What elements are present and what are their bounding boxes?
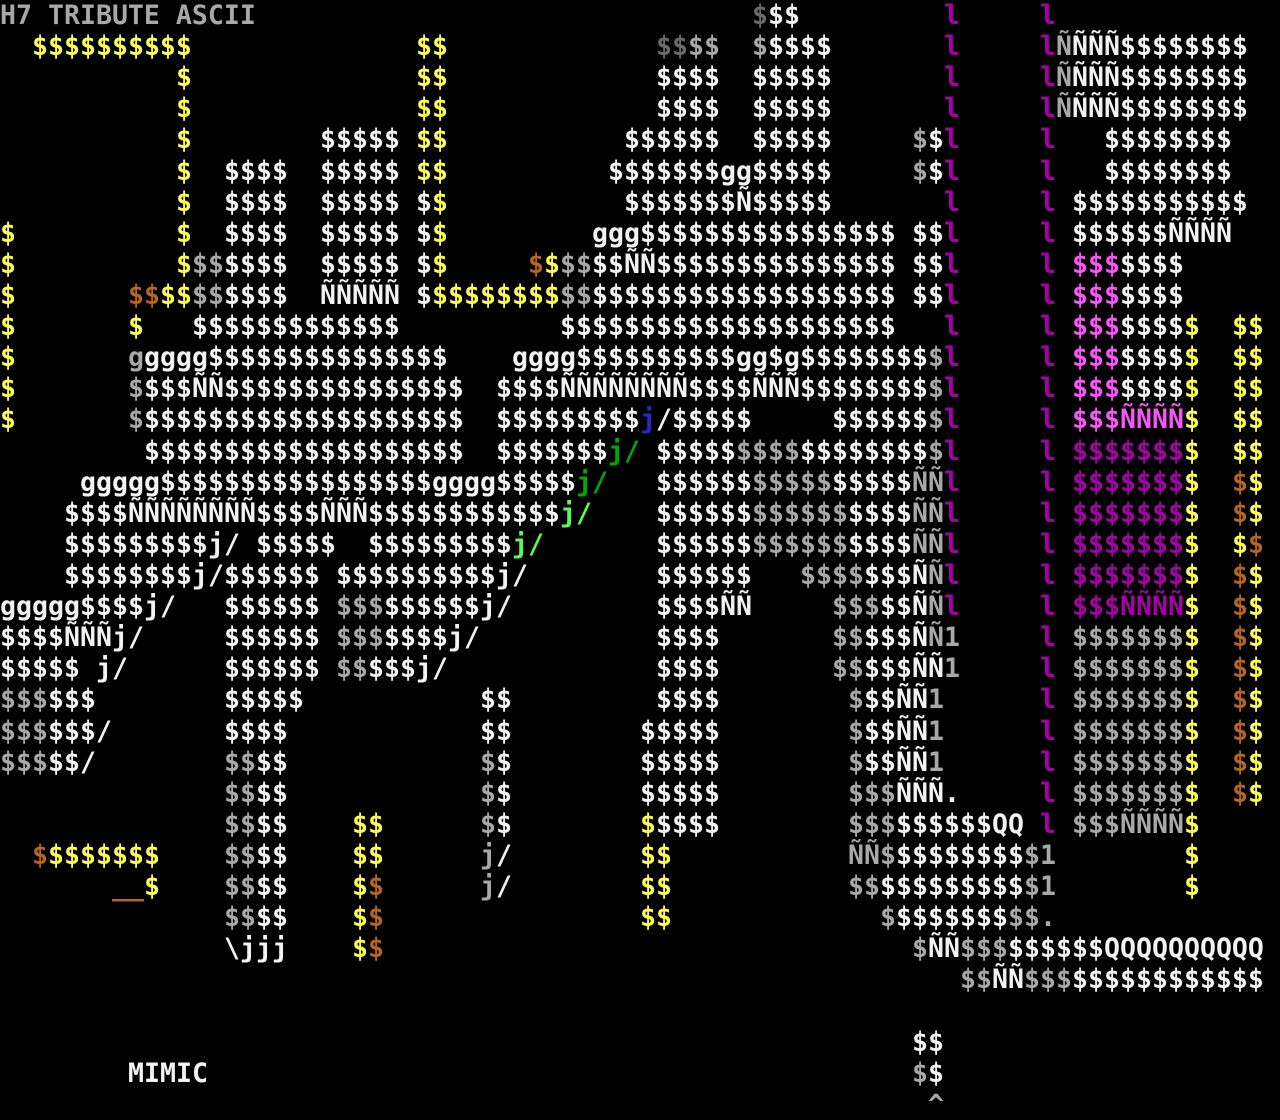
- art-char-run: j: [608, 436, 624, 467]
- art-char-run: g: [784, 342, 800, 373]
- art-char-run: l: [944, 436, 960, 467]
- art-char-run: $$$$$: [752, 156, 832, 187]
- art-char-run: __: [112, 871, 144, 902]
- art-char-run: $$$$$: [496, 467, 576, 498]
- art-char-run: $$$$$$$$$$$$: [1072, 964, 1264, 995]
- art-char-run: $: [1248, 498, 1264, 529]
- art-char-run: /: [512, 560, 528, 591]
- art-char-run: $$: [224, 902, 256, 933]
- art-char-run: $$$$$: [224, 684, 304, 715]
- art-char-run: $: [1248, 560, 1264, 591]
- art-char-run: 1: [944, 622, 960, 653]
- art-char-run: $$$: [864, 560, 912, 591]
- art-char-run: $$$$$$$$$$$$: [368, 498, 560, 529]
- art-char-run: l: [1040, 778, 1056, 809]
- art-char-run: /: [432, 653, 448, 684]
- art-char-run: $: [0, 404, 16, 435]
- art-char-run: $: [480, 778, 496, 809]
- art-char-run: l: [1040, 560, 1056, 591]
- art-char-run: l: [944, 187, 960, 218]
- art-char-run: l: [1040, 716, 1056, 747]
- art-char-run: $$$$$$$: [1072, 560, 1184, 591]
- art-char-run: $$$$$$$$$$$$$$$$$$$$: [144, 404, 464, 435]
- art-char-run: $: [1232, 747, 1248, 778]
- art-char-run: $$: [592, 249, 624, 280]
- art-char-run: /: [208, 560, 224, 591]
- art-char-run: $$$: [1072, 342, 1120, 373]
- art-char-run: $: [176, 124, 192, 155]
- art-char-run: $$$$$: [672, 404, 752, 435]
- art-char-run: $$: [1232, 373, 1264, 404]
- art-char-run: ÑÑÑÑ: [1120, 591, 1184, 622]
- art-char-run: $$: [224, 747, 256, 778]
- art-char-run: $: [0, 249, 16, 280]
- art-char-run: $$$$: [1120, 311, 1184, 342]
- art-char-run: $$$$$$$: [496, 436, 608, 467]
- art-char-run: /: [592, 467, 608, 498]
- art-char-run: ÑÑ: [912, 653, 944, 684]
- art-char-run: $: [480, 747, 496, 778]
- art-char-run: $$$: [864, 653, 912, 684]
- art-char-run: $$$$$$$: [48, 840, 160, 871]
- art-char-run: j: [144, 591, 160, 622]
- art-char-run: $: [1184, 560, 1200, 591]
- art-char-run: $: [128, 311, 144, 342]
- art-char-run: l: [1040, 280, 1056, 311]
- art-char-run: $: [1248, 529, 1264, 560]
- art-char-run: $$: [560, 249, 592, 280]
- art-char-run: $$$$$: [656, 436, 736, 467]
- art-char-run: $$$$$$$$$$$$$$$: [208, 342, 448, 373]
- art-char-run: $$$: [864, 622, 912, 653]
- art-char-run: $$$$: [656, 653, 720, 684]
- art-char-run: $$$$$$: [1008, 933, 1104, 964]
- art-char-run: $$$$$$$: [1072, 498, 1184, 529]
- art-char-run: $: [1184, 622, 1200, 653]
- art-char-run: $$$$$$: [752, 498, 848, 529]
- art-char-run: $$$$$: [640, 778, 720, 809]
- art-char-run: $: [1248, 747, 1264, 778]
- art-char-run: $$: [352, 809, 384, 840]
- art-char-run: $$$$$: [320, 249, 400, 280]
- art-char-run: $$: [224, 809, 256, 840]
- art-char-run: $: [432, 187, 448, 218]
- art-char-run: $: [528, 249, 544, 280]
- art-char-run: $$$: [848, 809, 896, 840]
- art-char-run: l: [944, 404, 960, 435]
- art-char-run: /: [496, 871, 512, 902]
- art-char-run: $$: [864, 716, 896, 747]
- art-char-run: l: [1040, 404, 1056, 435]
- art-char-run: $: [1184, 809, 1200, 840]
- art-char-run: $: [1184, 436, 1200, 467]
- art-char-run: $$$: [848, 778, 896, 809]
- art-char-run: $$$$$$: [656, 529, 752, 560]
- art-char-run: $: [1232, 684, 1248, 715]
- art-char-run: Ñ: [928, 622, 944, 653]
- art-char-run: $: [352, 871, 368, 902]
- art-char-run: $$$$$$$$$$$$$$$$$$$$$: [560, 311, 896, 342]
- art-char-run: $$$$$$$$: [432, 280, 560, 311]
- art-char-run: l: [1040, 498, 1056, 529]
- art-char-run: j: [112, 622, 128, 653]
- art-char-run: $$: [48, 747, 80, 778]
- art-char-run: ÑÑÑ: [896, 778, 944, 809]
- art-char-run: $: [1184, 653, 1200, 684]
- art-char-run: j: [208, 529, 224, 560]
- art-char-run: $$$$$$$: [1072, 653, 1184, 684]
- art-char-run: $$$$: [656, 684, 720, 715]
- art-char-run: $: [880, 840, 896, 871]
- art-char-run: $: [0, 218, 16, 249]
- art-char-run: l: [1040, 342, 1056, 373]
- art-char-run: gggg: [512, 342, 576, 373]
- art-char-run: j: [96, 653, 112, 684]
- art-char-run: $$: [224, 840, 256, 871]
- art-char-run: $$: [960, 964, 992, 995]
- art-char-run: $: [1232, 498, 1248, 529]
- art-char-run: $$: [640, 840, 672, 871]
- art-char-run: $$$$: [768, 31, 832, 62]
- art-char-run: /: [624, 436, 640, 467]
- art-char-run: $$: [256, 871, 288, 902]
- art-char-run: 1: [1040, 840, 1056, 871]
- art-char-run: $$: [192, 280, 224, 311]
- art-char-run: $$$$$$$$$$$$$$$: [656, 249, 896, 280]
- art-char-run: $$$$: [0, 622, 64, 653]
- art-char-run: $: [1248, 591, 1264, 622]
- art-char-run: /: [496, 591, 512, 622]
- art-char-run: $$$$$: [256, 529, 336, 560]
- art-char-run: $$: [480, 716, 512, 747]
- art-char-run: j: [640, 404, 656, 435]
- art-char-run: $: [176, 62, 192, 93]
- art-char-run: $: [176, 249, 192, 280]
- art-char-run: \jjj: [224, 933, 288, 964]
- art-char-run: $: [880, 902, 896, 933]
- ascii-art-screen: H7 TRIBUTE ASCII$$$ll$$$$$$$$$$$$$$$$$$$…: [0, 0, 1280, 1120]
- art-char-run: $$$$$$$: [624, 187, 736, 218]
- art-char-run: ÑÑ: [848, 840, 880, 871]
- art-char-run: $$$: [0, 747, 48, 778]
- art-char-run: $$: [1232, 342, 1264, 373]
- art-char-run: $: [416, 249, 432, 280]
- art-char-run: $: [768, 342, 784, 373]
- art-char-run: $$$$: [656, 93, 720, 124]
- art-char-run: $: [1184, 778, 1200, 809]
- art-char-run: $$$$$: [320, 218, 400, 249]
- art-char-run: $$: [160, 280, 192, 311]
- art-char-run: $: [1184, 840, 1200, 871]
- art-char-run: $: [1184, 311, 1200, 342]
- art-char-run: $: [432, 249, 448, 280]
- art-char-run: j: [480, 591, 496, 622]
- art-char-run: $$: [256, 809, 288, 840]
- art-char-run: $$$$$$$$$$$$$$$$$$$: [592, 280, 896, 311]
- art-char-run: $: [1232, 716, 1248, 747]
- art-char-run: $$: [416, 124, 448, 155]
- art-char-run: l: [944, 62, 960, 93]
- art-char-run: $: [912, 933, 928, 964]
- art-char-run: $$$$$$: [224, 560, 320, 591]
- art-char-run: ÑÑ: [720, 591, 752, 622]
- art-char-run: $: [1248, 653, 1264, 684]
- art-char-run: $$$$$$$$$: [496, 404, 640, 435]
- art-char-run: $$$$$$$$: [800, 342, 928, 373]
- art-char-run: $: [144, 871, 160, 902]
- art-char-run: ÑÑÑÑÑÑÑÑ: [128, 498, 256, 529]
- art-char-run: $$: [224, 871, 256, 902]
- art-char-run: H7 TRIBUTE ASCII: [0, 0, 256, 31]
- art-char-run: $$$: [48, 716, 96, 747]
- art-char-run: $$: [416, 62, 448, 93]
- art-char-run: ÑÑ: [928, 933, 960, 964]
- art-char-run: $$$$$$$: [1072, 622, 1184, 653]
- art-char-run: $: [368, 871, 384, 902]
- art-char-run: $: [1232, 591, 1248, 622]
- art-char-run: $$: [416, 93, 448, 124]
- art-char-run: $$$$: [1120, 342, 1184, 373]
- art-char-run: ÑÑ: [896, 747, 928, 778]
- art-char-run: $$$: [1072, 311, 1120, 342]
- art-char-run: /: [464, 622, 480, 653]
- art-char-run: $$: [256, 747, 288, 778]
- art-char-run: $: [1024, 871, 1040, 902]
- art-char-run: l: [944, 249, 960, 280]
- art-char-run: ÑÑ: [912, 467, 944, 498]
- art-char-run: $$$$$: [752, 124, 832, 155]
- art-char-run: l: [1040, 747, 1056, 778]
- art-char-run: $$$: [368, 653, 416, 684]
- art-char-run: $: [1184, 871, 1200, 902]
- art-char-run: l: [1040, 187, 1056, 218]
- art-char-run: Ñ: [928, 560, 944, 591]
- art-char-run: $: [912, 1058, 928, 1089]
- art-char-run: Ñ: [912, 622, 928, 653]
- art-char-run: $$$$$: [0, 653, 80, 684]
- art-char-run: Ñ: [1056, 93, 1072, 124]
- art-char-run: ÑÑÑ: [752, 373, 800, 404]
- art-char-run: $$: [912, 218, 944, 249]
- art-char-run: $$$$$$$: [1072, 684, 1184, 715]
- art-char-run: $: [848, 716, 864, 747]
- art-char-run: $$$$: [224, 249, 288, 280]
- art-char-run: /: [656, 404, 672, 435]
- art-char-run: 1: [1040, 871, 1056, 902]
- art-char-run: $$$: [48, 684, 96, 715]
- art-char-run: gg: [720, 156, 752, 187]
- art-char-run: Ñ: [912, 591, 928, 622]
- art-char-run: $$$: [0, 684, 48, 715]
- art-char-run: j: [480, 871, 496, 902]
- art-char-run: $$$$$$$$: [800, 436, 928, 467]
- art-char-run: l: [944, 31, 960, 62]
- art-char-run: $$$$$$: [656, 467, 752, 498]
- art-char-run: ÑÑÑ: [1072, 93, 1120, 124]
- art-char-run: $$: [352, 840, 384, 871]
- art-char-run: $$: [832, 622, 864, 653]
- art-char-run: l: [944, 156, 960, 187]
- art-char-run: l: [1040, 467, 1056, 498]
- art-char-run: $$$: [336, 591, 384, 622]
- art-char-run: $: [928, 436, 944, 467]
- art-char-run: l: [1040, 591, 1056, 622]
- art-char-run: Ñ: [1056, 31, 1072, 62]
- art-char-run: $$$$$$$$$$: [32, 31, 192, 62]
- art-char-run: $: [416, 218, 432, 249]
- art-char-run: l: [1040, 31, 1056, 62]
- art-char-run: l: [1040, 373, 1056, 404]
- art-char-run: $: [752, 31, 768, 62]
- art-char-run: l: [944, 498, 960, 529]
- art-char-run: l: [1040, 436, 1056, 467]
- art-char-run: $$$$$$$$: [64, 560, 192, 591]
- art-char-run: 1: [944, 653, 960, 684]
- art-char-run: $$$$: [656, 809, 720, 840]
- art-char-run: $: [416, 280, 432, 311]
- art-char-run: $$$: [960, 933, 1008, 964]
- art-char-run: ggggg: [80, 467, 160, 498]
- art-char-run: $$$$$: [752, 187, 832, 218]
- art-char-run: $$$$$$: [752, 529, 848, 560]
- art-char-run: $$$: [144, 373, 192, 404]
- art-char-run: $: [544, 249, 560, 280]
- art-char-run: $$$$$: [752, 467, 832, 498]
- art-char-run: l: [1040, 62, 1056, 93]
- art-char-run: l: [1040, 311, 1056, 342]
- art-char-run: MIMIC: [128, 1058, 208, 1089]
- art-char-run: $$$$$$$$$$: [336, 560, 496, 591]
- art-char-run: $: [1248, 716, 1264, 747]
- art-char-run: $$$$: [256, 498, 320, 529]
- art-char-run: $$: [912, 1027, 944, 1058]
- art-char-run: l: [1040, 93, 1056, 124]
- art-char-run: ÑÑÑ: [1072, 62, 1120, 93]
- art-char-run: j: [448, 622, 464, 653]
- art-char-run: l: [1040, 124, 1056, 155]
- art-char-run: $: [1184, 591, 1200, 622]
- art-char-run: $$$$$$$: [1072, 747, 1184, 778]
- art-char-run: $$$: [1072, 809, 1120, 840]
- art-char-run: $: [928, 156, 944, 187]
- art-char-run: $$: [848, 871, 880, 902]
- art-char-run: $$$$$$$: [1072, 467, 1184, 498]
- art-char-run: j: [560, 498, 576, 529]
- art-char-run: $: [928, 404, 944, 435]
- art-char-run: $$$$$$$$$$$$$$$$$: [160, 467, 432, 498]
- art-char-run: $: [1184, 684, 1200, 715]
- art-char-run: $: [1184, 467, 1200, 498]
- art-char-run: $: [496, 747, 512, 778]
- art-char-run: l: [944, 218, 960, 249]
- art-char-run: $$$: [336, 622, 384, 653]
- art-char-run: $$$$$: [752, 93, 832, 124]
- art-char-run: $$$: [832, 591, 880, 622]
- art-char-run: $$$$: [224, 716, 288, 747]
- art-char-run: $$: [480, 684, 512, 715]
- art-char-run: $$$$: [736, 436, 800, 467]
- art-char-run: $: [1232, 467, 1248, 498]
- art-char-run: $$$$$: [320, 156, 400, 187]
- art-char-run: Ñ: [928, 591, 944, 622]
- art-char-run: $$$$: [224, 187, 288, 218]
- art-char-run: $: [496, 809, 512, 840]
- art-char-run: $: [176, 93, 192, 124]
- art-char-run: $$$$$$$$$$$: [1072, 187, 1248, 218]
- art-char-run: $$$$: [1120, 249, 1184, 280]
- art-char-run: $: [368, 933, 384, 964]
- art-char-run: Ñ: [1056, 62, 1072, 93]
- art-char-run: l: [1040, 218, 1056, 249]
- art-char-run: $$$$: [384, 622, 448, 653]
- art-char-run: $$$$$: [320, 124, 400, 155]
- art-char-run: $: [912, 156, 928, 187]
- art-char-run: $: [1232, 778, 1248, 809]
- art-char-run: $: [1184, 373, 1200, 404]
- art-char-run: $$$$$: [640, 716, 720, 747]
- art-char-run: gggg: [144, 342, 208, 373]
- art-char-run: $: [1184, 498, 1200, 529]
- art-char-run: $$$$$$: [656, 560, 752, 591]
- art-char-run: $$$$$$$$: [1120, 31, 1248, 62]
- art-char-run: $$: [768, 0, 800, 31]
- art-char-run: ÑÑÑÑ: [1168, 218, 1232, 249]
- art-char-run: $$: [416, 31, 448, 62]
- art-char-run: $$$: [1072, 404, 1120, 435]
- art-char-run: $$$$$$: [224, 653, 320, 684]
- art-char-run: QQQQQQQQQQ: [1104, 933, 1264, 964]
- art-char-run: $$$$$$$$: [1104, 124, 1232, 155]
- art-char-run: gg: [736, 342, 768, 373]
- art-char-run: $$: [256, 840, 288, 871]
- art-char-run: $$$$$$: [224, 622, 320, 653]
- art-char-run: $$$$$$$$$$$$$: [192, 311, 400, 342]
- art-char-run: ggggg: [0, 591, 80, 622]
- art-char-run: l: [1040, 622, 1056, 653]
- art-char-run: ÑÑ: [912, 498, 944, 529]
- art-char-run: $: [928, 124, 944, 155]
- art-char-run: $$$$$$$$: [896, 840, 1024, 871]
- art-char-run: $$: [640, 871, 672, 902]
- art-char-run: $: [1232, 622, 1248, 653]
- art-char-run: $$$$$$$: [1072, 778, 1184, 809]
- art-char-run: .: [1040, 902, 1056, 933]
- art-char-run: $$: [864, 747, 896, 778]
- art-char-run: $: [1184, 747, 1200, 778]
- art-char-run: $$$$: [656, 591, 720, 622]
- art-char-run: ÑÑ: [896, 716, 928, 747]
- art-char-run: l: [944, 591, 960, 622]
- art-char-run: $$$$$: [640, 747, 720, 778]
- art-char-run: $$: [640, 902, 672, 933]
- art-char-run: Ñ: [912, 560, 928, 591]
- art-char-run: /: [160, 591, 176, 622]
- art-char-run: $$$$$$$: [608, 156, 720, 187]
- art-char-run: l: [944, 373, 960, 404]
- art-char-run: $$$$$$$: [896, 902, 1008, 933]
- art-char-run: $$: [1232, 436, 1264, 467]
- art-char-run: $$: [864, 684, 896, 715]
- art-char-run: $$: [128, 280, 160, 311]
- art-char-run: $: [1248, 684, 1264, 715]
- art-char-run: $$$$$$$: [1072, 716, 1184, 747]
- art-char-run: $: [928, 373, 944, 404]
- art-char-run: $$$$$: [832, 467, 912, 498]
- art-char-run: j: [480, 840, 496, 871]
- art-char-run: $: [0, 373, 16, 404]
- art-char-run: $$$$: [656, 622, 720, 653]
- art-char-run: $$$$: [224, 280, 288, 311]
